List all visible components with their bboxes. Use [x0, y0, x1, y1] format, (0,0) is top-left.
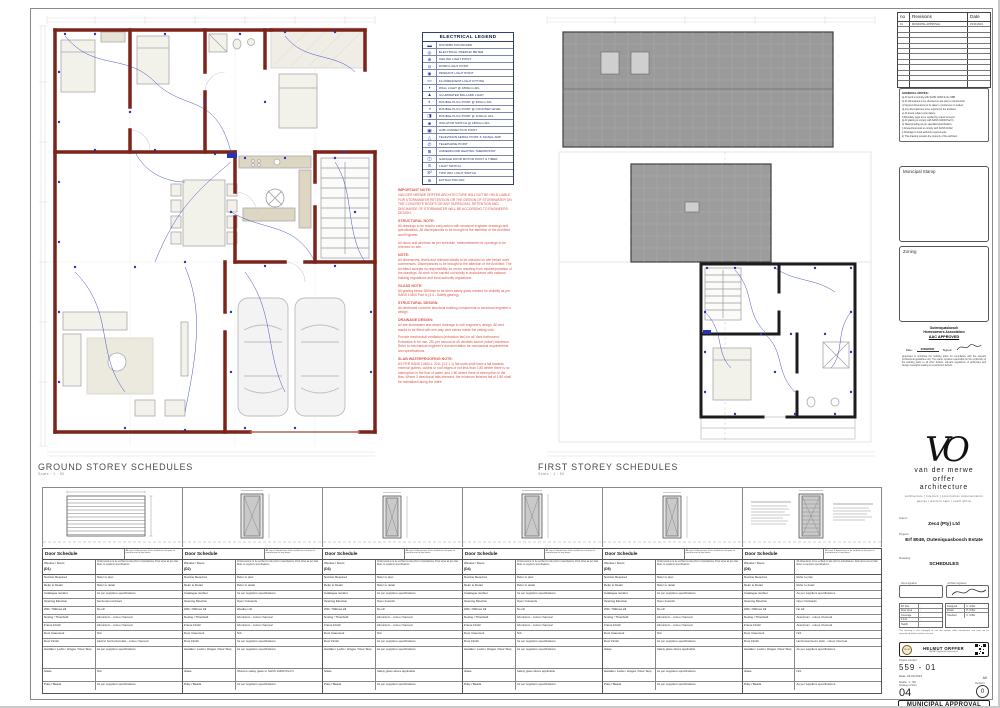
door-row-label: Refer to Detail	[463, 583, 516, 590]
general-notes-box: GENERAL NOTES: a) All work to comply wit…	[899, 88, 989, 142]
door-schedule-row: With / Without sill No sill	[43, 607, 182, 615]
door-schedule-row: Glass Safety glass where applicable	[603, 647, 742, 669]
door-row-label: Catalogue number	[603, 591, 656, 598]
door-schedule-row: Handles / Locks / Hinges / Door Stop As …	[183, 647, 322, 669]
legend-symbol-icon: ▣	[423, 127, 437, 134]
door-schedule-title-note: All sizes & dimensions to be verified on…	[264, 549, 322, 559]
door-schedule-row: Door Finish As per suppliers specificati…	[603, 639, 742, 647]
door-row-label: Nosing / Threshold	[743, 615, 795, 622]
door-row-value: Safety glass where applicable	[376, 669, 462, 681]
first-title-text: FIRST STOREY SCHEDULES	[538, 462, 678, 472]
door-schedule-row: Catalogue number As per suppliers specif…	[743, 591, 881, 599]
legend-symbol-icon: ◐	[423, 99, 437, 106]
door-row-value: Refer to detail	[236, 583, 322, 590]
door-schedule-row: With / Without sill No sill	[603, 607, 742, 615]
door-row-value: Refer to detail	[795, 583, 881, 590]
door-schedule-row: Refer to Detail Refer to detail	[603, 583, 742, 591]
municipal-stamp-label: Municipal Stamp	[900, 167, 988, 174]
legend-row: ▲ ILLUMINATED BOLLARD LIGHT	[423, 92, 513, 99]
door-row-label: Nosing / Threshold	[43, 615, 96, 622]
hoa-date-label: Date:	[906, 348, 913, 352]
door-row-label: With / Without sill	[743, 607, 795, 614]
door-schedule-row: Frame Finish Aluminium - colour charcoal	[743, 623, 881, 631]
door-row-value: No sill	[795, 607, 881, 614]
hoa-signed-label: Signed:	[943, 348, 953, 352]
door-row-value: Open Inwards	[656, 599, 742, 606]
door-row-value: Aluminium - colour charcoal	[795, 615, 881, 622]
door-row-label: Door Casement	[463, 631, 516, 638]
note-section: SLAB WATERPROOFING NOTE: AS PER SANS 104…	[398, 357, 512, 384]
door-row-label: Door Casement	[43, 631, 96, 638]
door-code: (D4)	[464, 567, 514, 571]
door-schedule-row: Refer to Detail Refer to detail	[463, 583, 602, 591]
door-row-label: Glass	[603, 647, 656, 668]
door-schedule-row: Door Casement N/A	[463, 631, 602, 639]
door-schedule-row: Handles / Locks / Hinges / Door Stop As …	[463, 647, 602, 669]
door-row-value: Open Outwards	[795, 599, 881, 606]
door-row-label: Catalogue number	[323, 591, 376, 598]
door-row-label: Door Finish	[183, 639, 236, 646]
door-schedule-title-note: All sizes & dimensions to be verified on…	[404, 549, 462, 559]
door-row-value: N/A	[376, 631, 462, 638]
door-code: (D3)	[324, 567, 374, 571]
door-row-label: Opening Direction	[743, 599, 795, 606]
door-row-value: As per suppliers specifications	[376, 647, 462, 668]
door-schedule-row: Putty / Beads As per suppliers specifica…	[603, 682, 742, 690]
door-schedule-row: Opening Direction Open Outwards	[463, 599, 602, 607]
door-schedule-row: Refer to Detail Refer to detail	[43, 583, 182, 591]
scale-label: Scale:	[899, 680, 907, 684]
legend-symbol-icon: ⊞	[423, 148, 437, 155]
revision-row-empty	[898, 81, 990, 86]
door-row-value: Refer to plan	[795, 575, 881, 582]
door-schedule-header-row: Window / Doors (D6) All dimensions to be…	[743, 560, 881, 575]
door-schedule-row: Putty / Beads As per suppliers specifica…	[183, 682, 322, 690]
door-schedule-row: Number Required Refer to plan	[43, 575, 182, 583]
door-row-label: Putty / Beads	[43, 682, 96, 690]
door-row-value: As per suppliers specifications	[376, 639, 462, 646]
door-row-value: Aluminium - colour charcoal	[376, 615, 462, 622]
qr-code-icon	[975, 644, 986, 655]
legend-row: ◫ GARAGE DOOR MOTOR POINT & TIMER	[423, 156, 513, 163]
door-row-label: Refer to Detail	[743, 583, 795, 590]
info-label: F.A.R.	[900, 618, 919, 622]
legend-symbol-icon: ▲	[423, 92, 437, 99]
door-schedule-row: Glass Safety glass where applicable	[323, 669, 462, 682]
revisions-header: no Revisions Date	[898, 13, 990, 22]
door-schedule-row: With / Without sill No sill	[743, 607, 881, 615]
door-schedule-title: Door Schedule	[743, 549, 823, 559]
info-value: H. Orffer	[965, 609, 988, 613]
legend-label: PENDANT LIGHT POINT	[437, 71, 474, 75]
door-schedule-row: Door Casement N/A	[43, 631, 182, 639]
door-row-value: As per suppliers specifications	[236, 682, 322, 690]
info-col-right: Designed C. Orffer Drawn H. Orffer Check…	[945, 603, 989, 628]
door-code: (D1)	[44, 567, 94, 571]
door-row-label: Putty / Beads	[323, 682, 376, 690]
door-row-label: Refer to Detail	[183, 583, 236, 590]
door-schedule-title-note: All sizes & dimensions to be verified on…	[823, 549, 881, 559]
door-row-value: As per suppliers specifications	[376, 682, 462, 690]
hoa-line2: Homeowners Association	[899, 330, 989, 334]
door-schedule-row: Glass N/A	[743, 669, 881, 682]
ground-title-text: GROUND STOREY SCHEDULES	[38, 462, 193, 472]
door-schedule-row: Opening Direction Open Inwards	[323, 599, 462, 607]
note-section: STRUCTURAL DESIGN: All reinforced concre…	[398, 301, 512, 315]
door-schedule-row: Nosing / Threshold Aluminium - colour ch…	[183, 615, 322, 623]
note-body: All reinforced concrete structural build…	[398, 306, 512, 315]
info-value: C. Orffer	[965, 613, 988, 618]
architect-subtitle: SACAP Registered Professional	[914, 651, 973, 653]
legend-label: DOUBLE PLUG POINT @ COUNTER LEVEL	[437, 107, 501, 111]
door-schedule-row: Number Required Refer to plan	[463, 575, 602, 583]
door-schedule-table: Door Schedule All sizes & dimensions to …	[602, 548, 742, 694]
door-header-note: All dimensions to be verified on site pr…	[656, 560, 742, 574]
legend-symbol-icon: ⊙	[423, 63, 437, 70]
door-header-note: All dimensions to be verified on site pr…	[795, 560, 881, 574]
door-schedule-row: Nosing / Threshold Aluminium - colour ch…	[323, 615, 462, 623]
drawing-sheet: GROUND STOREY SCHEDULES Scale : 1 : 50 F…	[0, 0, 998, 706]
legend-row: ◎ ELECTRICAL PREPAID METER	[423, 49, 513, 56]
drawing-label: Drawing:	[899, 556, 989, 560]
door-schedule-row: Frame Finish Aluminium - colour charcoal	[463, 623, 602, 631]
door-elevation-d3	[323, 488, 463, 547]
legend-row: △ TELEVISION AERIAL POINT & SIGNAL AMP	[423, 134, 513, 141]
scale-value: 1 : 50	[908, 680, 916, 684]
legend-row: ◉ PENDANT LIGHT POINT	[423, 70, 513, 77]
door-schedule-title: Door Schedule	[43, 549, 124, 559]
door-schedule-title: Door Schedule	[183, 549, 264, 559]
door-schedule-row: Nosing / Threshold Aluminium - colour ch…	[463, 615, 602, 623]
door-row-value: N/A	[96, 631, 182, 638]
door-row-label: Glass	[183, 669, 236, 681]
legend-label: ILLUMINATED BOLLARD LIGHT	[437, 93, 484, 97]
door-code: (D5)	[604, 567, 654, 571]
legend-row: ◑ DOUBLE PLUG POINT @ COUNTER LEVEL	[423, 106, 513, 113]
first-plan-title: FIRST STOREY SCHEDULES Scale : 1 : 50	[538, 462, 678, 476]
architect-signature	[950, 586, 988, 598]
door-row-label: Frame Finish	[603, 623, 656, 630]
legend-row: ■ ISOLATOR SWITCH @ 1800mm AFL	[423, 120, 513, 127]
firm-contact: george | western cape | south africa	[895, 500, 993, 503]
info-row: Height -	[900, 622, 942, 627]
electrical-legend: ELECTRICAL LEGEND ▬ DISTRIBUTION BOARD ◎…	[422, 32, 514, 185]
municipal-stamp-box: Municipal Stamp	[899, 166, 989, 242]
door-row-label: Door Casement	[603, 631, 656, 638]
door-schedule-row: With / Without sill No sill	[463, 607, 602, 615]
door-schedule-row: Door Finish Horizontal louvre slats - co…	[743, 639, 881, 647]
legend-label: DOUBLE PLUG POINT @ 1100mm AFL	[437, 114, 494, 118]
legend-label: WALL LIGHT @ 1800mm AFL	[437, 86, 480, 90]
door-row-value: Refer to detail	[96, 583, 182, 590]
door-row-label: Door Finish	[463, 639, 516, 646]
title-block: no Revisions Date 01 MUNICIPAL APPROVAL …	[895, 8, 993, 700]
note-section: DRAINAGE DESIGN: All site stormwater and…	[398, 318, 512, 332]
door-schedule-row: Number Required Refer to plan	[183, 575, 322, 583]
legend-label: DISTRIBUTION BOARD	[437, 43, 472, 47]
revision-desc: MUNICIPAL APPROVAL	[910, 22, 968, 26]
sacap-roundel-icon: SACAP	[902, 645, 912, 655]
general-note-line: k) This drawing remains the property of …	[902, 135, 986, 139]
door-row-value: Aluminium - colour charcoal	[516, 615, 602, 622]
legend-symbol-icon: ▭	[423, 77, 437, 84]
door-row-label: Glass	[43, 669, 96, 681]
door-row-value: No sill	[516, 607, 602, 614]
door-code: (D6)	[744, 567, 793, 571]
door-row-label: Frame Finish	[43, 623, 96, 630]
legend-label: TWO WAY LIGHT SWITCH	[437, 171, 476, 175]
door-row-value: No sill	[376, 607, 462, 614]
door-row-label: Putty / Beads	[463, 682, 516, 690]
firm-name-1: van der merwe	[895, 467, 993, 476]
legend-label: TELEVISION AERIAL POINT & SIGNAL AMP	[437, 135, 501, 139]
zoning-box: Zoning	[899, 246, 989, 322]
door-schedule-title: Door Schedule	[463, 549, 544, 559]
door-schedule-header-row: Window / Doors (D2) All dimensions to be…	[183, 560, 322, 575]
door-header-note: All dimensions to be verified on site pr…	[236, 560, 322, 574]
ground-floor-plan	[35, 12, 390, 460]
door-row-value: No sill	[656, 607, 742, 614]
door-row-value: Refer to plan	[236, 575, 322, 582]
door-row-label: Handles / Locks / Hinges / Door Stop	[323, 647, 376, 668]
door-row-value: N/A	[516, 631, 602, 638]
door-schedule-row: Door Finish As per suppliers specificati…	[323, 639, 462, 647]
door-schedule-row: Handles / Locks / Hinges / Door Stop As …	[43, 647, 182, 669]
legend-label: LIGHT SWITCH	[437, 164, 461, 168]
door-row-value: Open Inwards	[376, 599, 462, 606]
note-body: VAN DER MERWE ORFFER ARCHITECTURE WILL N…	[398, 193, 512, 216]
door-row-value: As per suppliers specifications	[96, 591, 182, 598]
door-schedule-row: Frame Finish Aluminium - colour charcoal	[43, 623, 182, 631]
door-schedule-row: Frame Finish Aluminium - colour charcoal	[323, 623, 462, 631]
door-schedule-row: Putty / Beads As per suppliers specifica…	[463, 682, 602, 690]
door-schedule-row: Nosing / Threshold Aluminium - colour ch…	[43, 615, 182, 623]
firm-tagline: architecture | interiors | construction …	[895, 495, 993, 498]
door-row-label: Door Casement	[183, 631, 236, 638]
hoa-disclaimer: Appointed to scrutinise the building pla…	[899, 356, 989, 369]
legend-symbol-icon: ⊛	[423, 177, 437, 184]
door-schedule-row: Refer to Detail Refer to detail	[183, 583, 322, 591]
door-row-value: Refer to plan	[656, 575, 742, 582]
door-row-label: Opening Direction	[463, 599, 516, 606]
legend-symbol-icon: S	[423, 163, 437, 170]
legend-row: S LIGHT SWITCH	[423, 163, 513, 170]
door-row-label: Refer to Detail	[43, 583, 96, 590]
door-window-label: Window / Doors	[44, 561, 94, 565]
door-schedule-row: Number Required Refer to plan	[743, 575, 881, 583]
legend-row: S² TWO WAY LIGHT SWITCH	[423, 170, 513, 177]
door-row-value: Obscure safety glass to SANS 10400 Part …	[236, 669, 322, 681]
legend-symbol-icon: ◫	[423, 156, 437, 163]
door-row-label: Glass	[743, 669, 795, 681]
revisions-col-date: Date	[968, 13, 990, 21]
info-label: Coverage	[900, 613, 919, 617]
note-body: Provide mechanical ventilation (extracti…	[398, 335, 512, 353]
legend-symbol-icon: ⊕	[423, 56, 437, 63]
door-schedule-row: Handles / Locks / Hinges / Door Stop As …	[323, 647, 462, 669]
hoa-approval-stamp: Outeniquasbosch Homeowners Association A…	[899, 326, 989, 368]
legend-label: EXTRACTOR FAN	[437, 178, 465, 182]
door-row-value: Weather sill	[236, 607, 322, 614]
note-section: NOTE: All dimensions, levels and relevan…	[398, 253, 512, 280]
door-row-value: As per suppliers specifications	[376, 591, 462, 598]
door-schedule-row: Catalogue number As per suppliers specif…	[323, 591, 462, 599]
door-row-value: Refer to detail	[376, 583, 462, 590]
door-window-label: Window / Doors	[324, 561, 374, 565]
info-value: -	[919, 609, 942, 613]
door-row-value: Aluminium - colour charcoal	[795, 623, 881, 630]
door-schedule-row: Catalogue number As per suppliers specif…	[463, 591, 602, 599]
door-schedule-row: Catalogue number As per suppliers specif…	[43, 591, 182, 599]
note-body: All site stormwater and sewer drainage t…	[398, 323, 512, 332]
door-row-value: Aluminium - colour charcoal	[236, 615, 322, 622]
door-row-label: Door Casement	[743, 631, 795, 638]
project-field: Project: Erf 8049, Outeniquasbosch Estat…	[899, 532, 989, 543]
door-schedule-row: Door Finish Aluzinc horizontal slats - c…	[43, 639, 182, 647]
note-section: IMPORTANT NOTE: VAN DER MERWE ORFFER ARC…	[398, 188, 512, 215]
door-row-value: Horizontal louvre slats - colour charcoa…	[795, 639, 881, 646]
door-row-value: Refer to detail	[656, 583, 742, 590]
door-schedule-row: Glass Obscure safety glass to SANS 10400…	[183, 669, 322, 682]
door-row-value: N/A	[795, 631, 881, 638]
client-signature-box: Client signature	[899, 585, 943, 598]
firm-name-2: orffer	[895, 476, 993, 485]
door-schedule-row: Putty / Beads As per suppliers specifica…	[743, 682, 881, 690]
legend-label: ELECTRICAL PREPAID METER	[437, 50, 483, 54]
revisions-col-revisions: Revisions	[910, 13, 968, 21]
first-plan-scale: Scale : 1 : 50	[538, 472, 678, 476]
door-row-value: As per suppliers specifications	[795, 647, 881, 668]
door-schedule-table: Door Schedule All sizes & dimensions to …	[182, 548, 322, 694]
door-row-value: As per suppliers specifications	[96, 647, 182, 668]
door-row-label: With / Without sill	[603, 607, 656, 614]
door-window-label: Window / Doors	[464, 561, 514, 565]
info-label: Drawn	[946, 609, 965, 613]
architect-signature-box: Architect signature	[946, 585, 990, 598]
door-row-label: Frame Finish	[183, 623, 236, 630]
door-header-note: All dimensions to be verified on site pr…	[376, 560, 462, 574]
door-row-value: As per suppliers specifications	[656, 682, 742, 690]
door-row-label: Number Required	[743, 575, 795, 582]
door-schedule-row: Door Finish As per suppliers specificati…	[183, 639, 322, 647]
note-body: All dimensions, levels and relevant deta…	[398, 258, 512, 281]
door-elevation-d4	[463, 488, 603, 547]
legend-row: ⊙ DOWN LIGHT POINT	[423, 63, 513, 70]
door-schedule-header-row: Window / Doors (D4) All dimensions to be…	[463, 560, 602, 575]
legend-row: ▭ FLUORESCENT LIGHT FITTING	[423, 77, 513, 84]
first-floor-plan	[535, 12, 890, 460]
legend-symbol-icon: ◉	[423, 70, 437, 77]
door-row-label: Nosing / Threshold	[183, 615, 236, 622]
legend-label: GARAGE DOOR MOTOR POINT & TIMER	[437, 157, 498, 161]
sacap-banner: SACAP HELMUT ORFFER SACAP Registered Pro…	[899, 642, 989, 657]
legend-symbol-icon: △	[423, 134, 437, 141]
note-section: STRUCTURAL NOTE: All drawings to be read…	[398, 219, 512, 237]
legend-row: ◨ DOUBLE PLUG POINT @ 1100mm AFL	[423, 113, 513, 120]
door-row-value: Aluminium - colour charcoal	[236, 623, 322, 630]
info-row: Checked C. Orffer	[946, 613, 988, 618]
door-row-value: As per suppliers specifications	[236, 591, 322, 598]
info-value: -	[919, 604, 942, 608]
door-schedules-strip: Door Schedule All sizes & dimensions to …	[42, 548, 882, 694]
hoa-approved-text: AAC APPROVED	[899, 335, 989, 339]
revision-no: 01	[898, 22, 910, 26]
door-row-label: Frame Finish	[323, 623, 376, 630]
note-section: Provide mechanical ventilation (extracti…	[398, 335, 512, 353]
door-schedule-title-note: All sizes & dimensions to be verified on…	[544, 549, 602, 559]
door-row-label: Door Finish	[323, 639, 376, 646]
legend-row: ⊞ UNDERFLOOR HEATING THERMOSTAT	[423, 148, 513, 155]
door-row-label: Opening Direction	[603, 599, 656, 606]
door-schedule-row: With / Without sill Weather sill	[183, 607, 322, 615]
door-row-value: As per suppliers specifications	[516, 682, 602, 690]
drawing-value: SCHEDULES	[899, 562, 989, 567]
info-label: Height	[900, 622, 919, 627]
door-window-label: Window / Doors	[744, 561, 793, 565]
door-row-label: Glass	[323, 669, 376, 681]
municipal-approval-banner: MUNICIPAL APPROVAL	[898, 700, 990, 706]
revisions-table: no Revisions Date 01 MUNICIPAL APPROVAL …	[897, 12, 991, 88]
door-schedule-row: Opening Direction Open Outwards	[743, 599, 881, 607]
door-row-value: As per suppliers specifications	[656, 591, 742, 598]
door-row-value: Safety glass where applicable	[516, 669, 602, 681]
door-schedule-title: Door Schedule	[603, 549, 684, 559]
door-schedule-title-note: All sizes & dimensions to be verified on…	[684, 549, 742, 559]
door-row-label: Catalogue number	[463, 591, 516, 598]
door-row-value: As per suppliers specifications	[795, 591, 881, 598]
note-section: All doors and windows as per schedule, m…	[398, 241, 512, 250]
door-row-label: Glass	[463, 669, 516, 681]
info-label: Erf Size	[900, 604, 919, 608]
note-body: All doors and windows as per schedule, m…	[398, 241, 512, 250]
door-row-label: With / Without sill	[183, 607, 236, 614]
project-value: Erf 8049, Outeniquasbosch Estate	[899, 538, 989, 543]
door-schedule-row: Handles / Locks / Hinges / Door Stop As …	[743, 647, 881, 669]
door-schedule-row: Putty / Beads As per suppliers specifica…	[323, 682, 462, 690]
door-row-value: Aluminium - colour charcoal	[96, 615, 182, 622]
info-value: C. Orffer	[965, 604, 988, 608]
door-row-value: Aluzinc horizontal slats - colour charco…	[96, 639, 182, 646]
door-row-value: As per suppliers specifications	[656, 639, 742, 646]
project-number-value: 559 - 01	[899, 663, 936, 672]
door-row-label: Door Finish	[743, 639, 795, 646]
firm-identity: VO van der merwe orffer architecture arc…	[895, 433, 993, 503]
door-row-label: Number Required	[323, 575, 376, 582]
door-row-label: Number Required	[463, 575, 516, 582]
legend-label: DOWN LIGHT POINT	[437, 64, 469, 68]
door-row-value: No sill	[96, 607, 182, 614]
door-row-value: N/A	[795, 669, 881, 681]
door-schedule-table: Door Schedule All sizes & dimensions to …	[322, 548, 462, 694]
door-schedule-row: Opening Direction Open Outwards	[183, 599, 322, 607]
door-schedule-header-row: Window / Doors (D3) All dimensions to be…	[323, 560, 462, 575]
door-schedule-row: Refer to Detail Refer to detail	[323, 583, 462, 591]
drawing-number-value: 04	[899, 687, 911, 699]
door-schedule-row: Door Casement N/A	[183, 631, 322, 639]
paper-size: A0	[983, 676, 987, 680]
door-row-label: Frame Finish	[743, 623, 795, 630]
info-label: Floor Area	[900, 609, 919, 613]
legend-row: ⊛ EXTRACTOR FAN	[423, 177, 513, 184]
door-code: (D2)	[184, 567, 234, 571]
legend-label: UNDERFLOOR HEATING THERMOSTAT	[437, 149, 496, 153]
door-row-value: Refer to plan	[516, 575, 602, 582]
legend-title: ELECTRICAL LEGEND	[423, 33, 513, 42]
door-row-label: Opening Direction	[323, 599, 376, 606]
info-value: -	[919, 622, 942, 627]
firm-name-3: architecture	[895, 484, 993, 493]
door-row-value: Refer to plan	[376, 575, 462, 582]
